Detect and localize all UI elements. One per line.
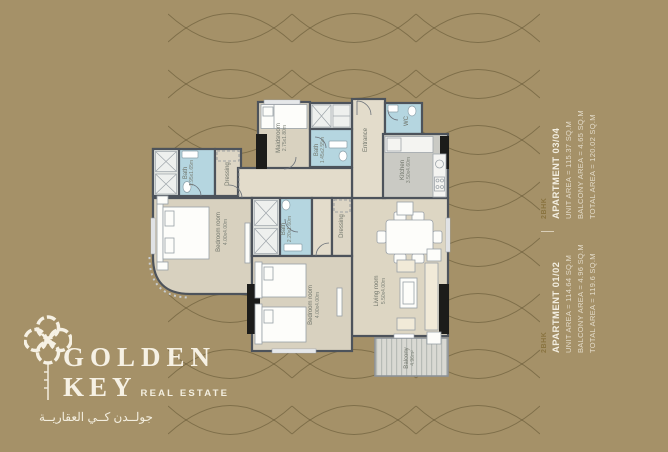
logo-word-key: KEY [63,372,137,402]
label-bedroom-second: Bedroom room [308,285,314,325]
label-bedroom-master: Bedroom room [216,212,222,252]
apartment-03-04-info: 2BHK APARTMENT 03/04 UNIT AREA = 115.37 … [539,110,599,219]
shower-master-1 [156,152,177,172]
window-living [446,218,450,252]
tv-console-second [337,288,342,316]
golden-key-logo: GOLDEN KEY REAL ESTATE جولــدن كــي العق… [22,310,237,440]
label-dressing-master: Dressing [225,162,231,186]
label-bath-master-dims: 1.95x1.65m [189,160,195,186]
label-kitchen-dims: 3.50x4.60m [406,157,412,183]
apartment-01-02-type: 2BHK [539,244,551,353]
kitchen-fridge [387,138,401,151]
logo-word-golden: GOLDEN [63,342,229,372]
sink-master [182,151,198,158]
label-living-dims: 5.50x4.00m [381,278,387,304]
bed-second-1 [255,262,306,298]
label-balcony-dims: 4.96m² [410,350,416,366]
room-corridor2 [312,198,332,256]
bed-master [157,196,209,270]
apartment-info-panel: 2BHK APARTMENT 01/02 UNIT AREA = 114.64 … [539,103,603,353]
label-maidsroom-dims: 2.75x1.80m [282,125,288,151]
sink-maid [329,141,347,148]
bed-second-2 [255,304,306,344]
shower-maid [312,105,331,127]
toilet-shared [282,200,290,210]
toilet-maid [339,151,347,161]
kitchen-sink [436,160,444,168]
apartment-01-02-unit-area: UNIT AREA = 114.64 SQ.M [563,244,575,353]
window-maidsroom [264,100,300,104]
sink-wc [388,105,398,112]
apartment-03-04-type: 2BHK [539,110,551,219]
label-bedroom-master-dims: 4.00x4.00m [223,219,229,245]
logo-subtitle: REAL ESTATE [141,388,230,399]
label-dressing-second: Dressing [339,214,345,238]
shower-shared-2 [255,229,278,254]
apartment-03-04-total-area: TOTAL AREA = 120.02 SQ.M [587,110,599,219]
info-panel-divider [541,231,554,232]
window-bedroom-master [151,218,155,254]
closet-maid [333,105,350,127]
logo-arabic-text: جولــدن كــي العقاريــة [30,410,162,424]
logo-text: GOLDEN KEY REAL ESTATE [63,342,229,402]
label-living: Living room [374,275,380,306]
apartment-01-02-total-area: TOTAL AREA = 119.6 SQ.M [587,244,599,353]
bed-maid [261,105,307,129]
apartment-03-04-unit-area: UNIT AREA = 115.37 SQ.M [563,110,575,219]
shower-master-2 [156,174,177,194]
label-bath-shared-dims: 2.20x1.60m [287,216,293,242]
apartment-03-04-balcony-area: BALCONY AREA = 4.65 SQ.M [575,110,587,219]
label-entrance: Entrance [363,127,369,152]
toilet-wc [408,106,416,116]
room-hallway [238,168,352,198]
apartment-03-04-title: APARTMENT 03/04 [551,110,563,219]
tv-console-master [245,223,250,263]
sink-shared [284,244,302,251]
apartment-01-02-balcony-area: BALCONY AREA = 4.96 SQ.M [575,244,587,353]
brochure-page: Maidsroom 2.75x1.80m Bath 1.45x2.55m Ent… [0,0,668,452]
label-bedroom-second-dims: 4.00x4.00m [315,292,321,318]
shower-shared-1 [255,201,278,226]
console-living [397,202,413,215]
apartment-01-02-title: APARTMENT 01/02 [551,244,563,353]
window-bedroom-second [272,349,316,353]
kitchen-stove [435,177,445,191]
balcony-door [394,334,414,338]
label-wc: WC [404,115,410,126]
apartment-01-02-info: 2BHK APARTMENT 01/02 UNIT AREA = 114.64 … [539,244,599,353]
label-maid-bath-dims: 1.45x2.55m [320,137,326,163]
